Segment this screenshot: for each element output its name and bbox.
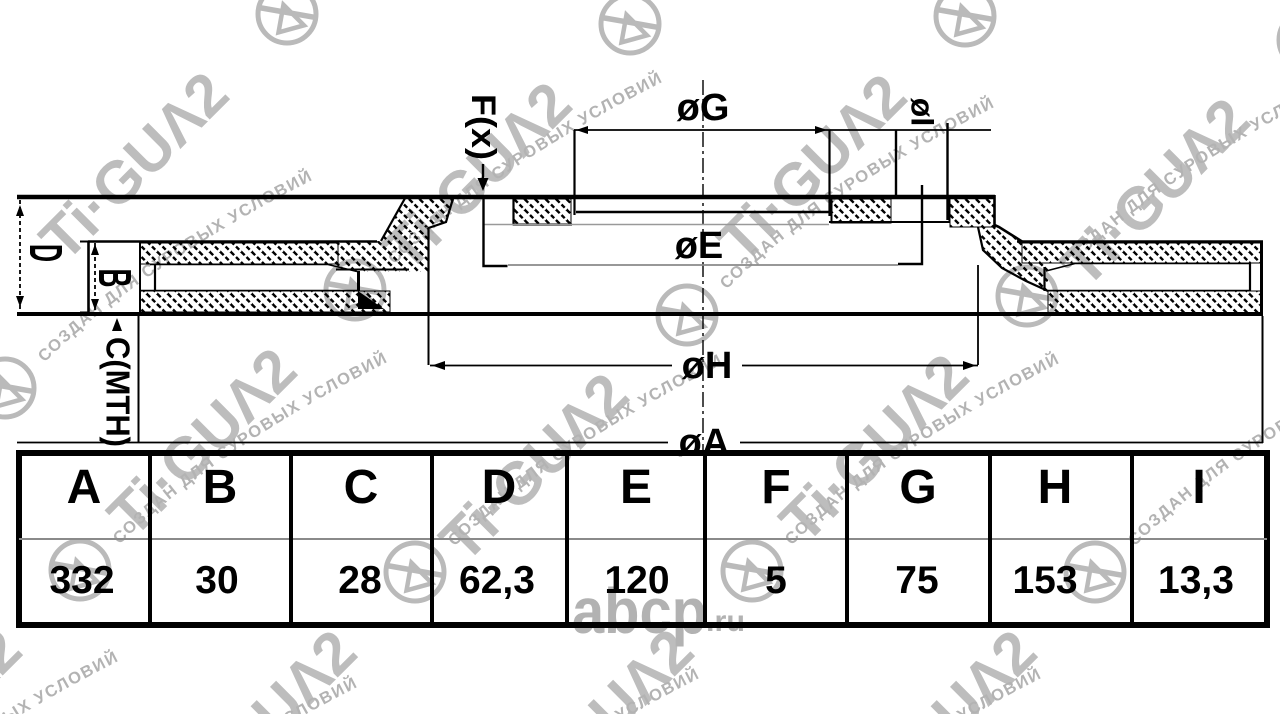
svg-text:Ti·GUΛ2: Ti·GUΛ2 — [835, 617, 1049, 714]
svg-text:СОЗДАН ДЛЯ СУРОВЫХ УСЛОВИЙ: СОЗДАН ДЛЯ СУРОВЫХ УСЛОВИЙ — [0, 0, 19, 210]
svg-text:62,3: 62,3 — [459, 559, 535, 602]
svg-text:13,3: 13,3 — [1158, 559, 1234, 602]
svg-text:30: 30 — [195, 559, 238, 602]
svg-text:F: F — [761, 461, 790, 514]
svg-text:СОЗДАН ДЛЯ СУРОВЫХ УСЛОВИЙ: СОЗДАН ДЛЯ СУРОВЫХ УСЛОВИЙ — [782, 306, 1067, 591]
svg-text:120: 120 — [604, 559, 669, 602]
svg-text:øE: øE — [675, 225, 724, 267]
svg-text:D: D — [482, 461, 517, 514]
svg-text:C(MTH): C(MTH) — [99, 337, 136, 447]
svg-text:5: 5 — [765, 559, 787, 602]
svg-text:.ru: .ru — [706, 605, 745, 638]
svg-text:СОЗДАН ДЛЯ СУРОВЫХ УСЛОВИЙ: СОЗДАН ДЛЯ СУРОВЫХ УСЛОВИЙ — [995, 0, 1280, 36]
svg-text:332: 332 — [49, 559, 114, 602]
svg-text:B: B — [203, 461, 238, 514]
svg-text:A: A — [67, 461, 102, 514]
svg-text:C: C — [344, 461, 379, 514]
svg-text:СОЗДАН ДЛЯ СУРОВЫХ УСЛОВИЙ: СОЗДАН ДЛЯ СУРОВЫХ УСЛОВИЙ — [317, 0, 602, 34]
svg-text:I: I — [1192, 461, 1205, 514]
svg-text:øH: øH — [682, 345, 733, 387]
svg-text:G: G — [899, 461, 936, 514]
svg-text:E: E — [620, 461, 652, 514]
svg-text:F(x): F(x) — [464, 94, 502, 160]
svg-text:øI: øI — [905, 98, 941, 126]
svg-text:СОЗДАН ДЛЯ СУРОВЫХ УСЛОВИЙ: СОЗДАН ДЛЯ СУРОВЫХ УСЛОВИЙ — [1125, 307, 1280, 592]
svg-text:75: 75 — [895, 559, 938, 602]
svg-text:H: H — [1038, 461, 1073, 514]
svg-text:28: 28 — [338, 559, 381, 602]
svg-text:D: D — [20, 244, 72, 262]
svg-text:СОЗДАН ДЛЯ СУРОВЫХ УСЛОВИЙ: СОЗДАН ДЛЯ СУРОВЫХ УСЛОВИЙ — [660, 0, 945, 44]
svg-text:153: 153 — [1012, 559, 1077, 602]
svg-text:B: B — [89, 269, 141, 288]
svg-text:øG: øG — [677, 87, 730, 129]
